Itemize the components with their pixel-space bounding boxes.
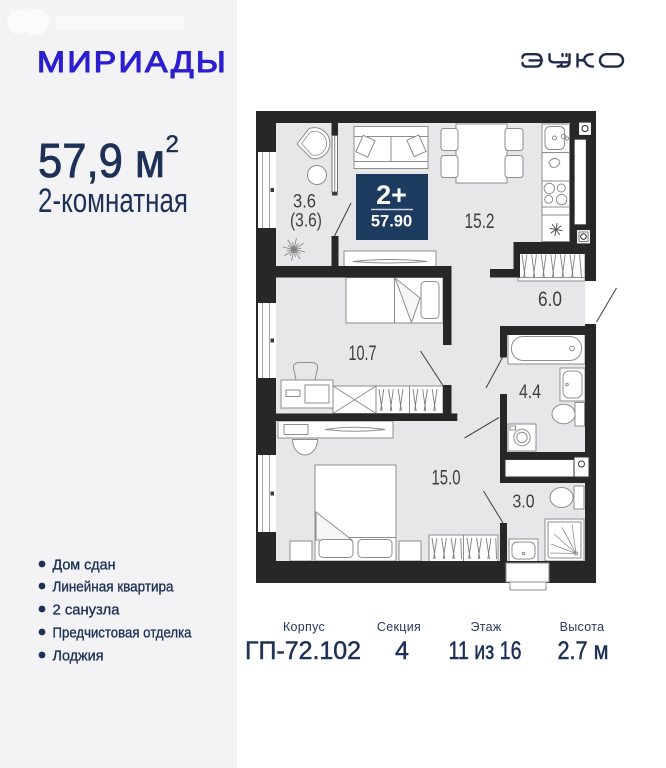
svg-text:Высота: Высота xyxy=(560,620,605,634)
svg-text:Дом сдан: Дом сдан xyxy=(53,556,116,573)
svg-text:(3.6): (3.6) xyxy=(290,211,322,232)
svg-text:10.7: 10.7 xyxy=(349,342,377,365)
svg-text:Линейная квартира: Линейная квартира xyxy=(53,578,175,595)
svg-text:6.0: 6.0 xyxy=(538,288,562,311)
svg-text:57.90: 57.90 xyxy=(371,213,412,231)
svg-text:2.7 м: 2.7 м xyxy=(558,637,609,665)
svg-text:ГП-72.102: ГП-72.102 xyxy=(245,637,361,665)
svg-text:Секция: Секция xyxy=(377,620,421,634)
svg-text:МИРИАДЫ: МИРИАДЫ xyxy=(37,46,228,79)
svg-text:57,9 м: 57,9 м xyxy=(38,135,165,188)
svg-text:2 санузла: 2 санузла xyxy=(53,601,121,618)
svg-text:11 из 16: 11 из 16 xyxy=(449,637,522,665)
svg-text:4: 4 xyxy=(395,637,409,665)
svg-text:Корпус: Корпус xyxy=(283,620,325,634)
svg-text:Предчистовая отделка: Предчистовая отделка xyxy=(53,624,193,641)
svg-text:3.0: 3.0 xyxy=(513,492,535,512)
svg-text:3.6: 3.6 xyxy=(293,192,316,213)
svg-text:2+: 2+ xyxy=(376,180,407,210)
svg-text:2: 2 xyxy=(166,131,179,158)
svg-text:4.4: 4.4 xyxy=(519,382,541,403)
svg-text:Этаж: Этаж xyxy=(470,620,501,634)
svg-text:Лоджия: Лоджия xyxy=(53,647,104,664)
svg-text:15.2: 15.2 xyxy=(465,210,495,233)
svg-text:2-комнатная: 2-комнатная xyxy=(38,182,188,220)
svg-text:15.0: 15.0 xyxy=(432,467,461,490)
